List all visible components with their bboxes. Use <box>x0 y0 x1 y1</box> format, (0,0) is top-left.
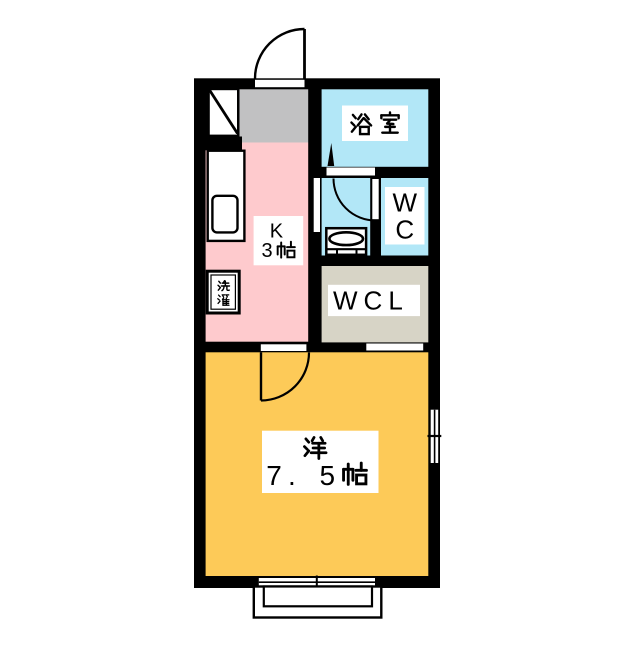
svg-text:3: 3 <box>262 240 273 262</box>
svg-text:7: 7 <box>266 460 282 491</box>
svg-text:W: W <box>393 188 418 218</box>
svg-text:.: . <box>288 460 296 491</box>
svg-text:C: C <box>395 215 414 245</box>
svg-text:5: 5 <box>320 460 336 491</box>
svg-text:WCL: WCL <box>333 286 409 316</box>
